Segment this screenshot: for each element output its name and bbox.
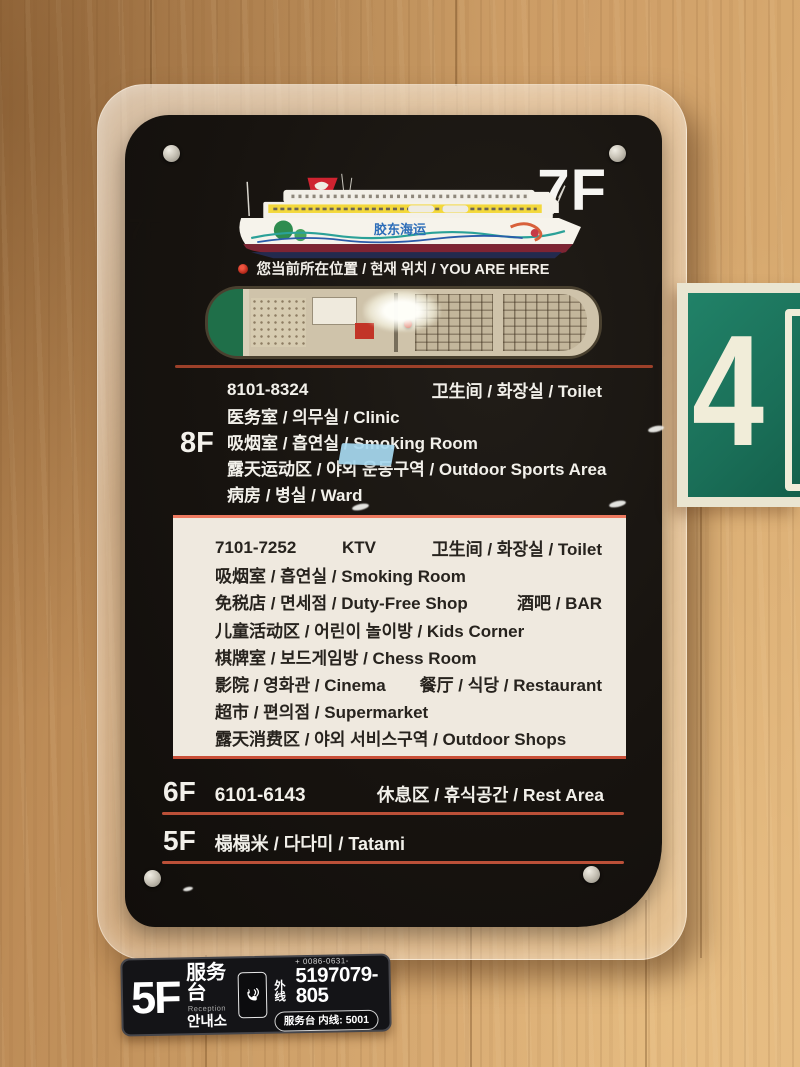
reception-title-zh: 服务台	[186, 962, 233, 1003]
deck-plan-cabins	[503, 294, 587, 351]
reception-title-en: Reception	[188, 1004, 233, 1012]
directory-row: 免税店 / 면세점 / Duty-Free Shop 酒吧 / BAR	[215, 588, 602, 615]
light-reflection	[363, 290, 441, 332]
row-text: 卫生间 / 화장실 / Toilet	[432, 535, 602, 560]
row-text: 病房 / 병실 / Ward	[227, 481, 363, 506]
directory-row: 医务室 / 의무실 / Clinic	[227, 403, 602, 429]
floor-8f-label: 8F	[180, 427, 214, 460]
floor-7f-label: 7F	[128, 214, 162, 247]
photo-scene: 7F 胶东海运 您当	[0, 0, 800, 1067]
wood-seam	[455, 0, 457, 86]
directory-row: 露天运动区 / 야외 운동구역 / Outdoor Sports Area	[227, 454, 602, 480]
reception-sign: 5F 服务台 Reception 안내소 外线 + 0086-0631- 519…	[120, 953, 391, 1036]
row-text: 7101-7252	[215, 538, 342, 558]
deck-number: 4	[692, 293, 764, 493]
deck-plan-lounge	[251, 298, 306, 347]
row-text: 免税店 / 면세점 / Duty-Free Shop	[215, 589, 468, 614]
ship-illustration: 胶东海运	[211, 171, 587, 265]
divider	[162, 812, 624, 815]
light-reflection	[648, 424, 665, 433]
phone-number: 5197079-805	[295, 964, 383, 1007]
floor-5f-label: 5F	[163, 825, 196, 857]
row-text: 酒吧 / BAR	[517, 589, 602, 614]
row-text: 超市 / 편의점 / Supermarket	[215, 698, 428, 723]
light-reflection	[183, 886, 194, 892]
row-text: 棋牌室 / 보드게임방 / Chess Room	[215, 644, 476, 669]
screw	[583, 866, 600, 883]
wood-seam	[700, 506, 702, 958]
row-text: 休息区 / 휴식공간 / Rest Area	[377, 782, 604, 807]
you-are-here-label: 您当前所在位置 / 현재 위치 / YOU ARE HERE	[257, 258, 550, 279]
floor-8f-section: 8101-8324 卫生间 / 화장실 / Toilet 医务室 / 의무실 /…	[227, 377, 602, 506]
row-text: 儿童活动区 / 어린이 놀이방 / Kids Corner	[215, 617, 524, 642]
room-range: 6101-6143	[215, 785, 306, 807]
light-reflection	[609, 499, 627, 508]
row-text: 医务室 / 의무실 / Clinic	[227, 403, 400, 428]
floor-6f-row: 6F 6101-6143 休息区 / 휴식공간 / Rest Area	[163, 776, 604, 808]
reception-floor-label: 5F	[131, 974, 180, 1020]
floor-7f-highlight-box: 7101-7252 KTV 卫生间 / 화장실 / Toilet 吸烟室 / 흡…	[173, 515, 626, 759]
internal-line-badge: 服务台 内线: 5001	[275, 1009, 379, 1031]
directory-row: 影院 / 영화관 / Cinema 餐厅 / 식당 / Restaurant	[215, 670, 602, 697]
floor-6f-label: 6F	[163, 776, 196, 808]
divider	[175, 365, 653, 368]
row-text: 8101-8324	[227, 380, 308, 400]
row-text: 餐厅 / 식당 / Restaurant	[420, 671, 602, 696]
directory-row: 7101-7252 KTV 卫生间 / 화장실 / Toilet	[215, 534, 602, 561]
floor-5f-row: 5F 榻榻米 / 다다미 / Tatami	[163, 825, 604, 857]
you-are-here-row: 您当前所在位置 / 현재 위치 / YOU ARE HERE	[125, 258, 662, 279]
row-text: 榻榻米 / 다다미 / Tatami	[215, 830, 405, 856]
you-are-here-dot	[238, 264, 248, 274]
wood-seam	[150, 0, 152, 88]
directory-row: 露天消费区 / 야외 서비스구역 / Outdoor Shops	[215, 724, 602, 751]
floor-directory-sign: 7F 胶东海运 您当	[125, 115, 662, 927]
row-text: 吸烟室 / 흡연실 / Smoking Room	[215, 562, 466, 587]
screw	[144, 870, 161, 887]
deck-plan-room	[312, 297, 357, 325]
directory-row: 超市 / 편의점 / Supermarket	[215, 697, 602, 724]
row-text: 露天消费区 / 야외 서비스구역 / Outdoor Shops	[215, 725, 566, 750]
deck-plan	[205, 286, 602, 359]
phone-icon	[238, 972, 268, 1019]
reception-title-ko: 안내소	[187, 1014, 233, 1029]
directory-row: 棋牌室 / 보드게임방 / Chess Room	[215, 643, 602, 670]
directory-row: 儿童活动区 / 어린이 놀이방 / Kids Corner	[215, 616, 602, 643]
evacuation-symbol-box	[785, 309, 800, 491]
external-line-label: 外线	[274, 981, 292, 1007]
directory-row: 病房 / 병실 / Ward	[227, 480, 602, 506]
screw	[163, 145, 180, 162]
screw	[609, 145, 626, 162]
deck-number-sign: 4	[677, 283, 800, 507]
row-text: 露天运动区 / 야외 운동구역 / Outdoor Sports Area	[227, 455, 606, 480]
directory-row: 8101-8324 卫生间 / 화장실 / Toilet	[227, 377, 602, 403]
tape-patch	[338, 443, 395, 466]
directory-row: 吸烟室 / 흡연실 / Smoking Room	[215, 561, 602, 588]
row-text: KTV	[342, 538, 376, 558]
directory-row: 吸烟室 / 흡연실 / Smoking Room	[227, 429, 602, 455]
divider	[162, 861, 624, 864]
row-text: 卫生间 / 화장실 / Toilet	[432, 377, 602, 402]
svg-text:胶东海运: 胶东海运	[374, 222, 427, 237]
row-text: 影院 / 영화관 / Cinema	[215, 671, 386, 696]
